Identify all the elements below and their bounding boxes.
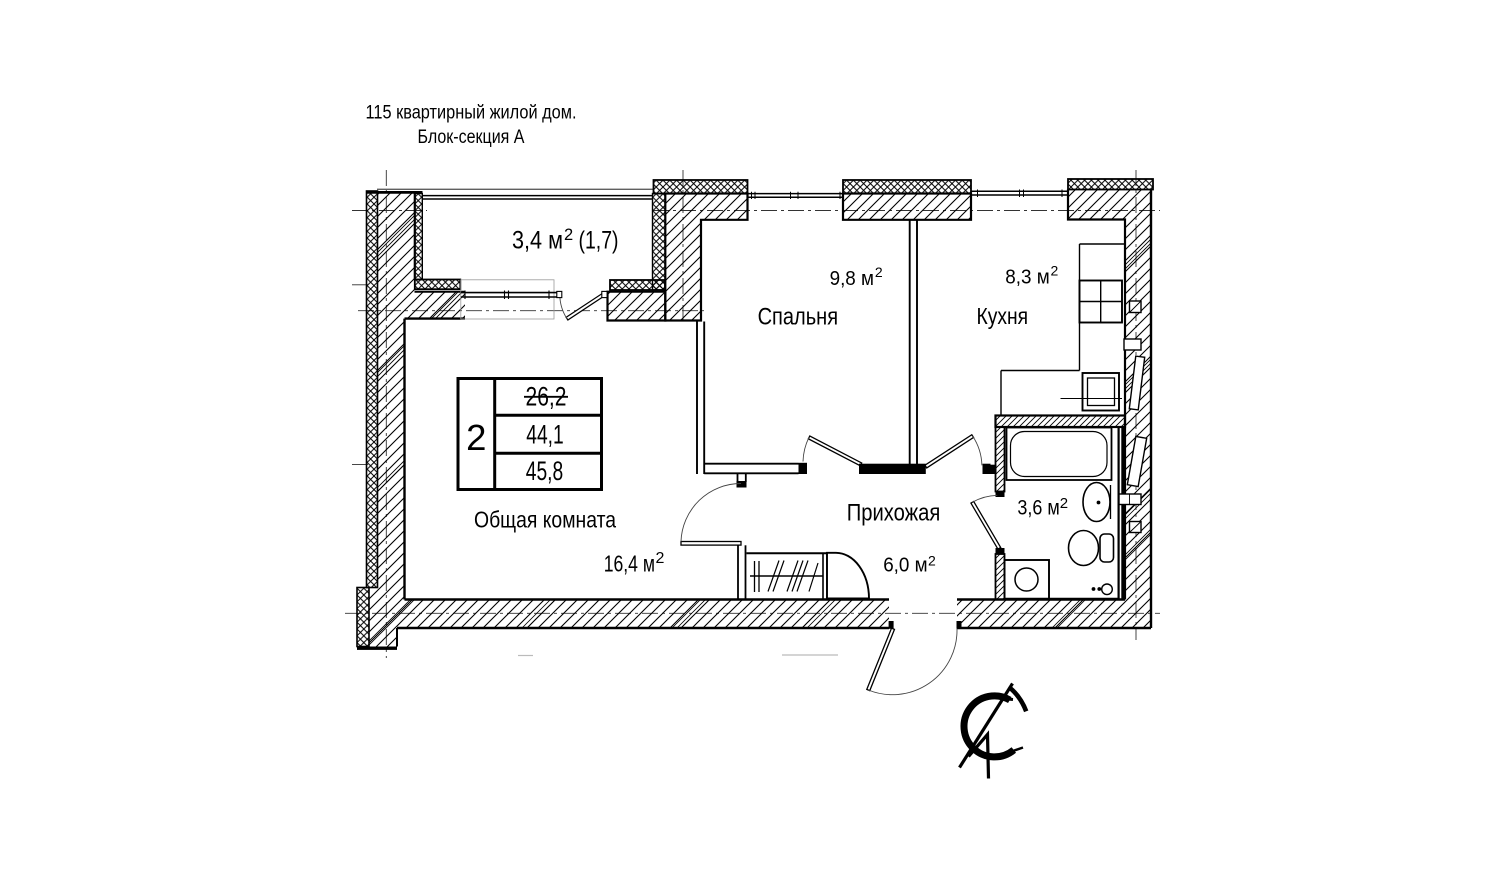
svg-text:9,8 м: 9,8 м [830,267,874,290]
svg-text:2: 2 [656,550,665,567]
svg-text:115 квартирный жилой дом.: 115 квартирный жилой дом. [366,103,577,124]
svg-text:2: 2 [875,264,883,280]
svg-text:2: 2 [1060,495,1068,512]
svg-text:Прихожая: Прихожая [847,499,941,526]
svg-text:(1,7): (1,7) [579,227,619,255]
svg-text:44,1: 44,1 [526,420,564,450]
svg-text:2: 2 [564,226,573,244]
svg-text:8,3 м: 8,3 м [1005,265,1050,288]
svg-text:Блок-секция А: Блок-секция А [418,127,525,148]
svg-text:16,4 м: 16,4 м [604,551,655,577]
svg-text:Кухня: Кухня [977,303,1029,329]
svg-text:Общая комната: Общая комната [474,507,616,533]
svg-text:45,8: 45,8 [526,456,564,486]
svg-text:2: 2 [1051,262,1059,278]
svg-text:Спальня: Спальня [758,304,839,331]
svg-text:2: 2 [466,417,486,458]
svg-text:3,6 м: 3,6 м [1017,497,1059,520]
svg-text:6,0 м: 6,0 м [883,555,927,577]
svg-text:3,4 м: 3,4 м [512,227,563,255]
svg-text:2: 2 [928,553,936,569]
